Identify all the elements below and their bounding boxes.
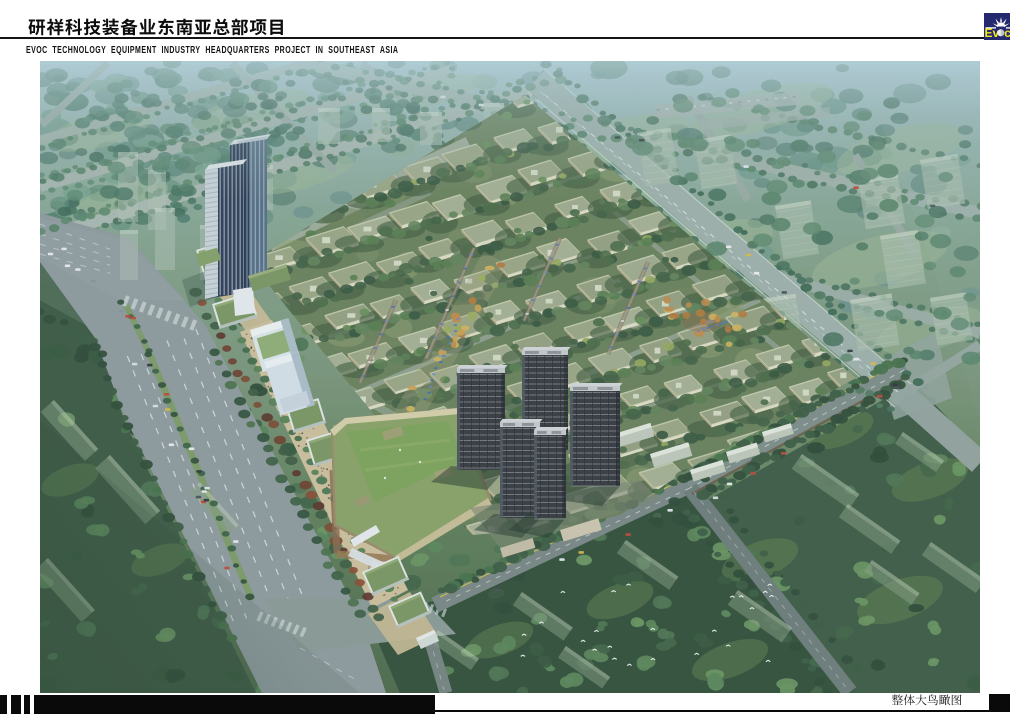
svg-text:c: c [1004,26,1010,40]
svg-text:Ev: Ev [985,26,1000,40]
